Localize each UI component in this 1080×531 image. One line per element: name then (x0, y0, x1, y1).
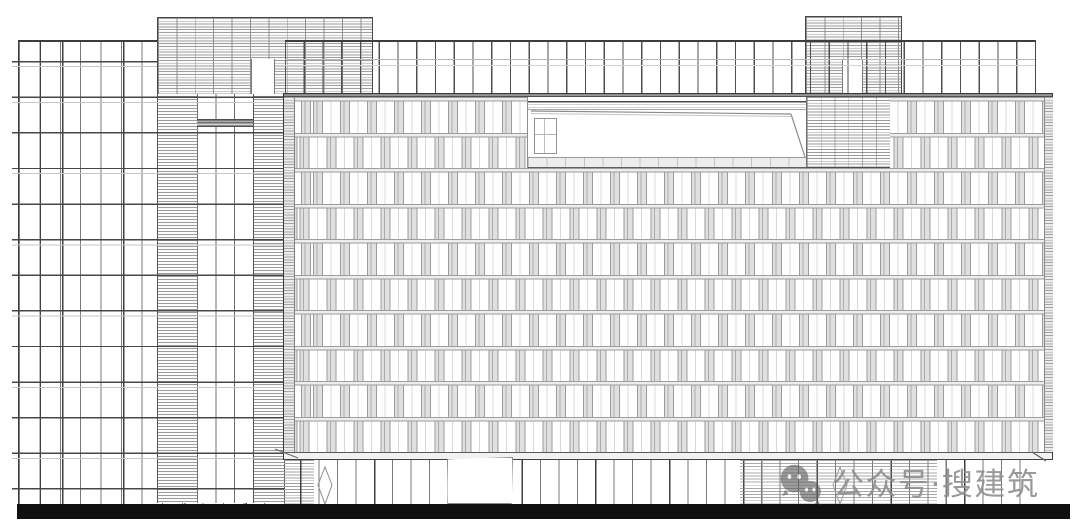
facade-row (284, 168, 1052, 204)
shaft-spandrel-band (197, 119, 253, 127)
core-louver-strip-left (157, 93, 199, 503)
facade-row (284, 381, 1052, 417)
facade-row (284, 239, 1052, 275)
rooftop-door-left (251, 59, 275, 94)
facade-row (284, 346, 1052, 382)
terrace-parapet-hatch (528, 101, 807, 110)
core-louver-strip-right (253, 93, 285, 503)
facade-row (284, 310, 1052, 346)
entrance-canopy (447, 457, 513, 504)
facade-row (284, 204, 1052, 240)
facade-row (284, 417, 1052, 453)
elevator-shaft-glazing (197, 93, 253, 503)
upper-setback-glass-band (285, 40, 1036, 93)
facade-base-band (284, 452, 1052, 460)
elevation-canvas: 公众号·搜建筑 (0, 0, 1080, 531)
wechat-icon (777, 461, 825, 509)
terrace-base-band (528, 157, 807, 168)
facade-row (284, 275, 1052, 311)
facade-edge-pier-right (1044, 97, 1053, 452)
terrace-stair-bulkhead (534, 118, 557, 154)
roof-terrace (527, 97, 807, 168)
service-core-hatch (806, 97, 890, 168)
facade-edge-pier-left (284, 97, 295, 452)
watermark-text: 公众号·搜建筑 (833, 461, 1039, 509)
watermark: 公众号·搜建筑 (777, 461, 1039, 509)
